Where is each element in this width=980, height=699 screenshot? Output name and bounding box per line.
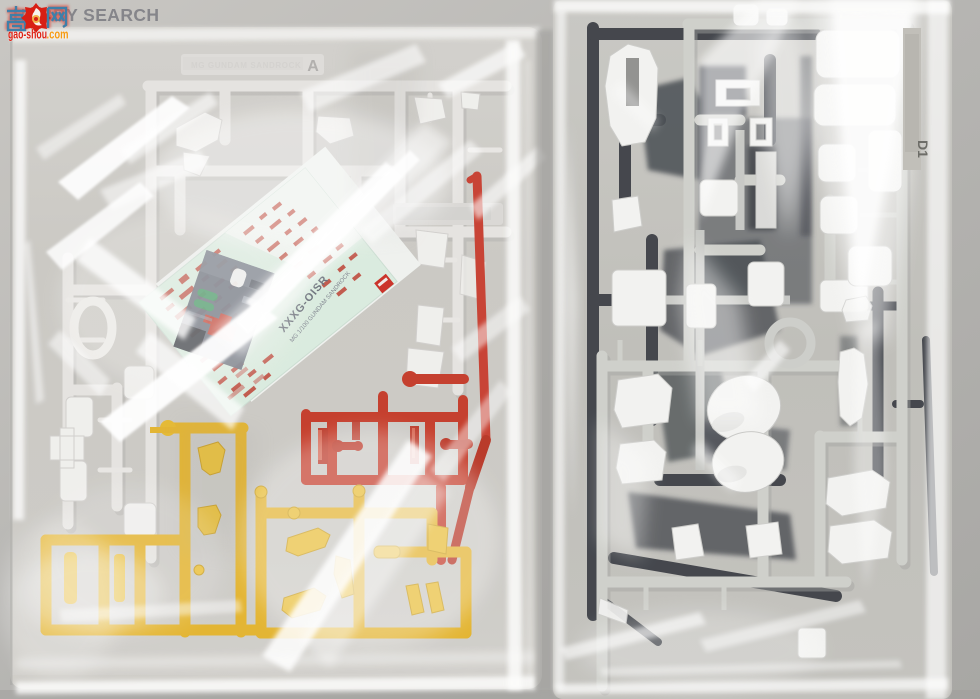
- svg-text:gao-shou: gao-shou: [8, 28, 47, 42]
- svg-text:.com: .com: [47, 28, 69, 42]
- svg-text:D1: D1: [915, 140, 931, 158]
